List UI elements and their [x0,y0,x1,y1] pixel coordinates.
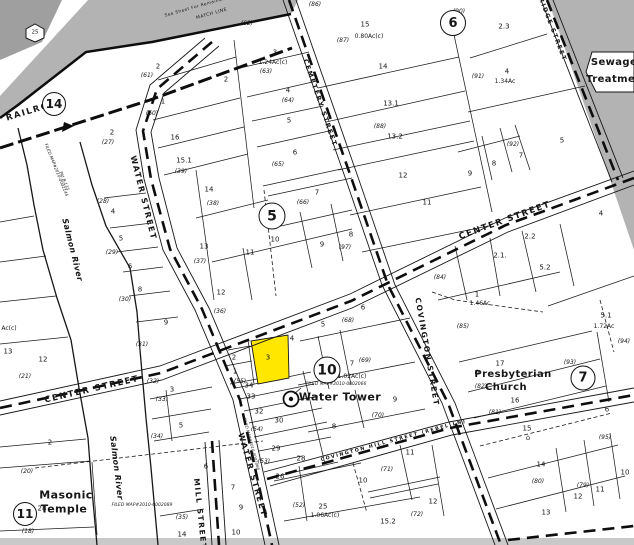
parcel-number: 26 [276,474,285,481]
street-name-label: MILL STREET [193,478,208,545]
parcel-number: 2 [224,77,228,84]
lot-reference: (69) [359,358,371,364]
parcel-number: 1 [161,99,165,106]
parcel-number: 5.2 [539,265,550,272]
parcel-number: 4 [505,69,509,76]
parcel-number: 4 [290,336,294,343]
parcel-number: 7 [350,361,354,368]
parcel-number: 29 [272,446,281,453]
hexagon-25-label: 25 [32,30,39,36]
lot-reference: (53) [258,459,270,465]
lot-reference: (97) [339,245,351,251]
lot-reference: (66) [297,200,309,206]
parcel-number: 12 [39,357,48,364]
parcel-number: 2 [110,130,114,137]
sewage-treatment-label: Sewage [591,58,634,68]
masonic-temple-label: Temple [41,504,87,515]
lot-reference: (52) [293,503,305,509]
acreage-label: 1.24Ac(c) [259,60,288,66]
lot-reference: (71) [381,467,393,473]
lot-reference: (60) [146,111,158,117]
acreage-label: 1.06Ac(c) [311,513,340,519]
presbyterian-church-label: Church [485,383,527,393]
parcel-number: 12 [399,173,408,180]
parcel-number: 12 [429,499,438,506]
lot-reference: (30) [119,297,131,303]
parcel-number: 9 [164,320,168,327]
parcel-number: 9 [393,397,397,404]
tax-map-canvas: RAILROADWATER STREETWATER STREETCENTER S… [0,0,634,545]
lot-reference: (27) [102,140,114,146]
lot-reference: (88) [374,124,386,130]
parcel-number: 11 [423,200,432,207]
lot-reference: (64) [282,98,294,104]
sewage-treatment-label: Treatment [586,75,634,85]
parcel-number: 11 [596,487,605,494]
lot-reference: (38) [207,201,219,207]
lot-reference: (86) [309,2,321,8]
block-number-circle: 14 [42,92,66,116]
lot-reference: (91) [472,74,484,80]
parcel-number: 4 [111,209,115,216]
parcel-number: 9 [468,171,472,178]
parcel-number: 6 [204,464,208,471]
street-name-label: BRIDGE STREET [535,0,567,62]
parcel-number: 6 [361,305,365,312]
parcel-number: 13.1 [383,101,399,108]
water-tower-label: Water Tower [299,392,381,403]
parcel-number: 2 [48,440,52,447]
parcel-number: 33 [247,394,256,401]
parcel-number: 2 [232,355,236,362]
lot-reference: (94) [618,339,630,345]
parcel-number: 2 [156,64,160,71]
lot-reference: (79) [577,483,589,489]
parcel-number: 16 [171,135,180,142]
block-number-circle: 6 [440,10,466,36]
parcel-number: 2.3 [498,24,509,31]
parcel-number: 7 [519,153,523,160]
lot-reference: (37) [194,259,206,265]
parcel-number: 15 [523,426,532,433]
parcel-number: 2.2 [524,234,535,241]
lot-reference: (85) [457,324,469,330]
lot-reference: (28) [97,199,109,205]
parcel-number: 6 [293,150,297,157]
parcel-number: 13.2 [387,134,403,141]
parcel-number: 28 [297,456,306,463]
parcel-number: 8 [349,232,353,239]
parcel-number: 12 [574,494,583,501]
lot-reference: (21) [19,374,31,380]
parcel-number: 11 [246,250,255,257]
street-name-label: CENTER STREET [44,375,140,405]
salmon-river-label: Salmon River [108,435,124,500]
parcel-number: 5 [560,138,564,145]
street-name-label: CEMETERY STREET [302,58,338,147]
parcel-number: 15.1 [176,158,192,165]
acreage-label: 1.46Ac [470,301,491,307]
lot-reference: (35) [176,515,188,521]
lot-reference: (39) [175,169,187,175]
lot-reference: (92) [507,142,519,148]
street-name-label: CENTER STREET [458,200,552,241]
lot-reference: (29) [106,250,118,256]
parcel-number: 9 [239,505,243,512]
parcel-number: 15 [361,22,370,29]
parcel-number: 14 [537,462,546,469]
parcel-number: 11 [406,450,415,457]
lot-reference: (84) [434,275,446,281]
parcel-number: 10 [271,237,280,244]
match-line-note: MATCH LINE [196,8,228,21]
parcel-number: 5.1 [600,313,611,320]
lot-reference: (81) [489,410,501,416]
lot-reference: (32) [147,379,159,385]
parcel-number: 12 [217,290,226,297]
church-icon: ⌂ [474,368,479,376]
block-number-circle: 7 [571,366,596,391]
parcel-number: 13 [542,510,551,517]
lot-reference: (18) [22,529,34,535]
lot-reference: (68) [342,318,354,324]
acreage-label: 0.80Ac(c) [355,34,384,40]
lot-reference: (55) [234,379,246,385]
lot-reference: (36) [214,309,226,315]
map-labels: RAILROADWATER STREETWATER STREETCENTER S… [0,0,634,545]
parcel-number: 1 [475,292,479,299]
parcel-number: 8 [492,161,496,168]
parcel-number: 16 [511,398,520,405]
parcel-number: 9 [320,242,324,249]
parcel-number: 4 [286,88,290,95]
parcel-number: 25 [319,504,328,511]
lot-reference: (82) [475,384,487,390]
parcel-number: 7 [231,485,235,492]
lot-reference: (34) [151,434,163,440]
parcel-number: 32 [255,409,264,416]
parcel-number: 7 [315,190,319,197]
salmon-river-label: Salmon River [60,218,83,283]
parcel-number: 14 [178,532,187,539]
block-number-circle: 5 [259,203,286,230]
parcel-number: 6 [605,407,609,414]
acreage-label: 1.34Ac [495,79,516,85]
parcel-number: 3 [170,387,174,394]
lot-reference: (80) [532,479,544,485]
parcel-number: 5 [287,118,291,125]
block-number-circle: 10 [314,357,341,384]
parcel-number: 28 [38,506,47,513]
acreage-label: Ac(c) [1,326,16,332]
parcel-number: 14 [379,64,388,71]
parcel-number: 30 [275,418,284,425]
parcel-number: 13 [200,244,209,251]
acreage-label: 1.02Ac(c) [338,374,367,380]
acreage-label: 1.72Ac [594,324,615,330]
parcel-number: 17 [496,361,505,368]
parcel-number: 3 [266,355,270,362]
lot-reference: (20) [21,469,33,475]
lot-reference: (93) [564,360,576,366]
house-icon: ⌂ [526,435,530,442]
parcel-number: 5 [321,322,325,329]
parcel-number: 8 [332,424,336,431]
street-name-label: WATER STREET [129,155,158,241]
masonic-temple-label: Masonic [39,490,92,501]
parcel-number: 5 [179,423,183,430]
parcel-number: 6 [128,264,132,271]
lot-reference: (31) [136,342,148,348]
lot-reference: (61) [141,73,153,79]
filed-map-number: FILED MAP#2010-0002066 [306,383,367,388]
block-number-circle: 11 [13,502,37,526]
parcel-number: 3 [273,50,277,57]
lot-reference: (87) [337,38,349,44]
parcel-number: 14 [205,187,214,194]
lot-reference: (63) [260,69,272,75]
lot-reference: (72) [411,512,423,518]
lot-reference: (65) [272,162,284,168]
filed-map-number: FILED MAP#2010-0002089 [112,504,173,509]
parcel-number: 2.1. [493,253,506,260]
street-name-label: COVINGTON HILL STREET (REBEL LN) [321,420,468,464]
lot-reference: (62) [241,21,253,27]
lot-reference: (70) [372,413,384,419]
lot-reference: (33) [156,397,168,403]
parcel-number: 5 [119,236,123,243]
parcel-number: 15.2 [380,519,396,526]
parcel-number: 10 [359,478,368,485]
parcel-number: 1 [233,369,237,376]
presbyterian-church-label: Presbyterian [474,370,551,380]
street-name-label: COVINGTON STREET [414,297,441,407]
parcel-number: 10 [621,470,630,477]
parcel-number: 8 [138,287,142,294]
parcel-number: 4 [599,211,603,218]
lot-reference: (95) [599,435,611,441]
lot-reference: (54) [251,427,263,433]
parcel-number: 10 [232,530,241,537]
parcel-number: 13 [4,349,13,356]
